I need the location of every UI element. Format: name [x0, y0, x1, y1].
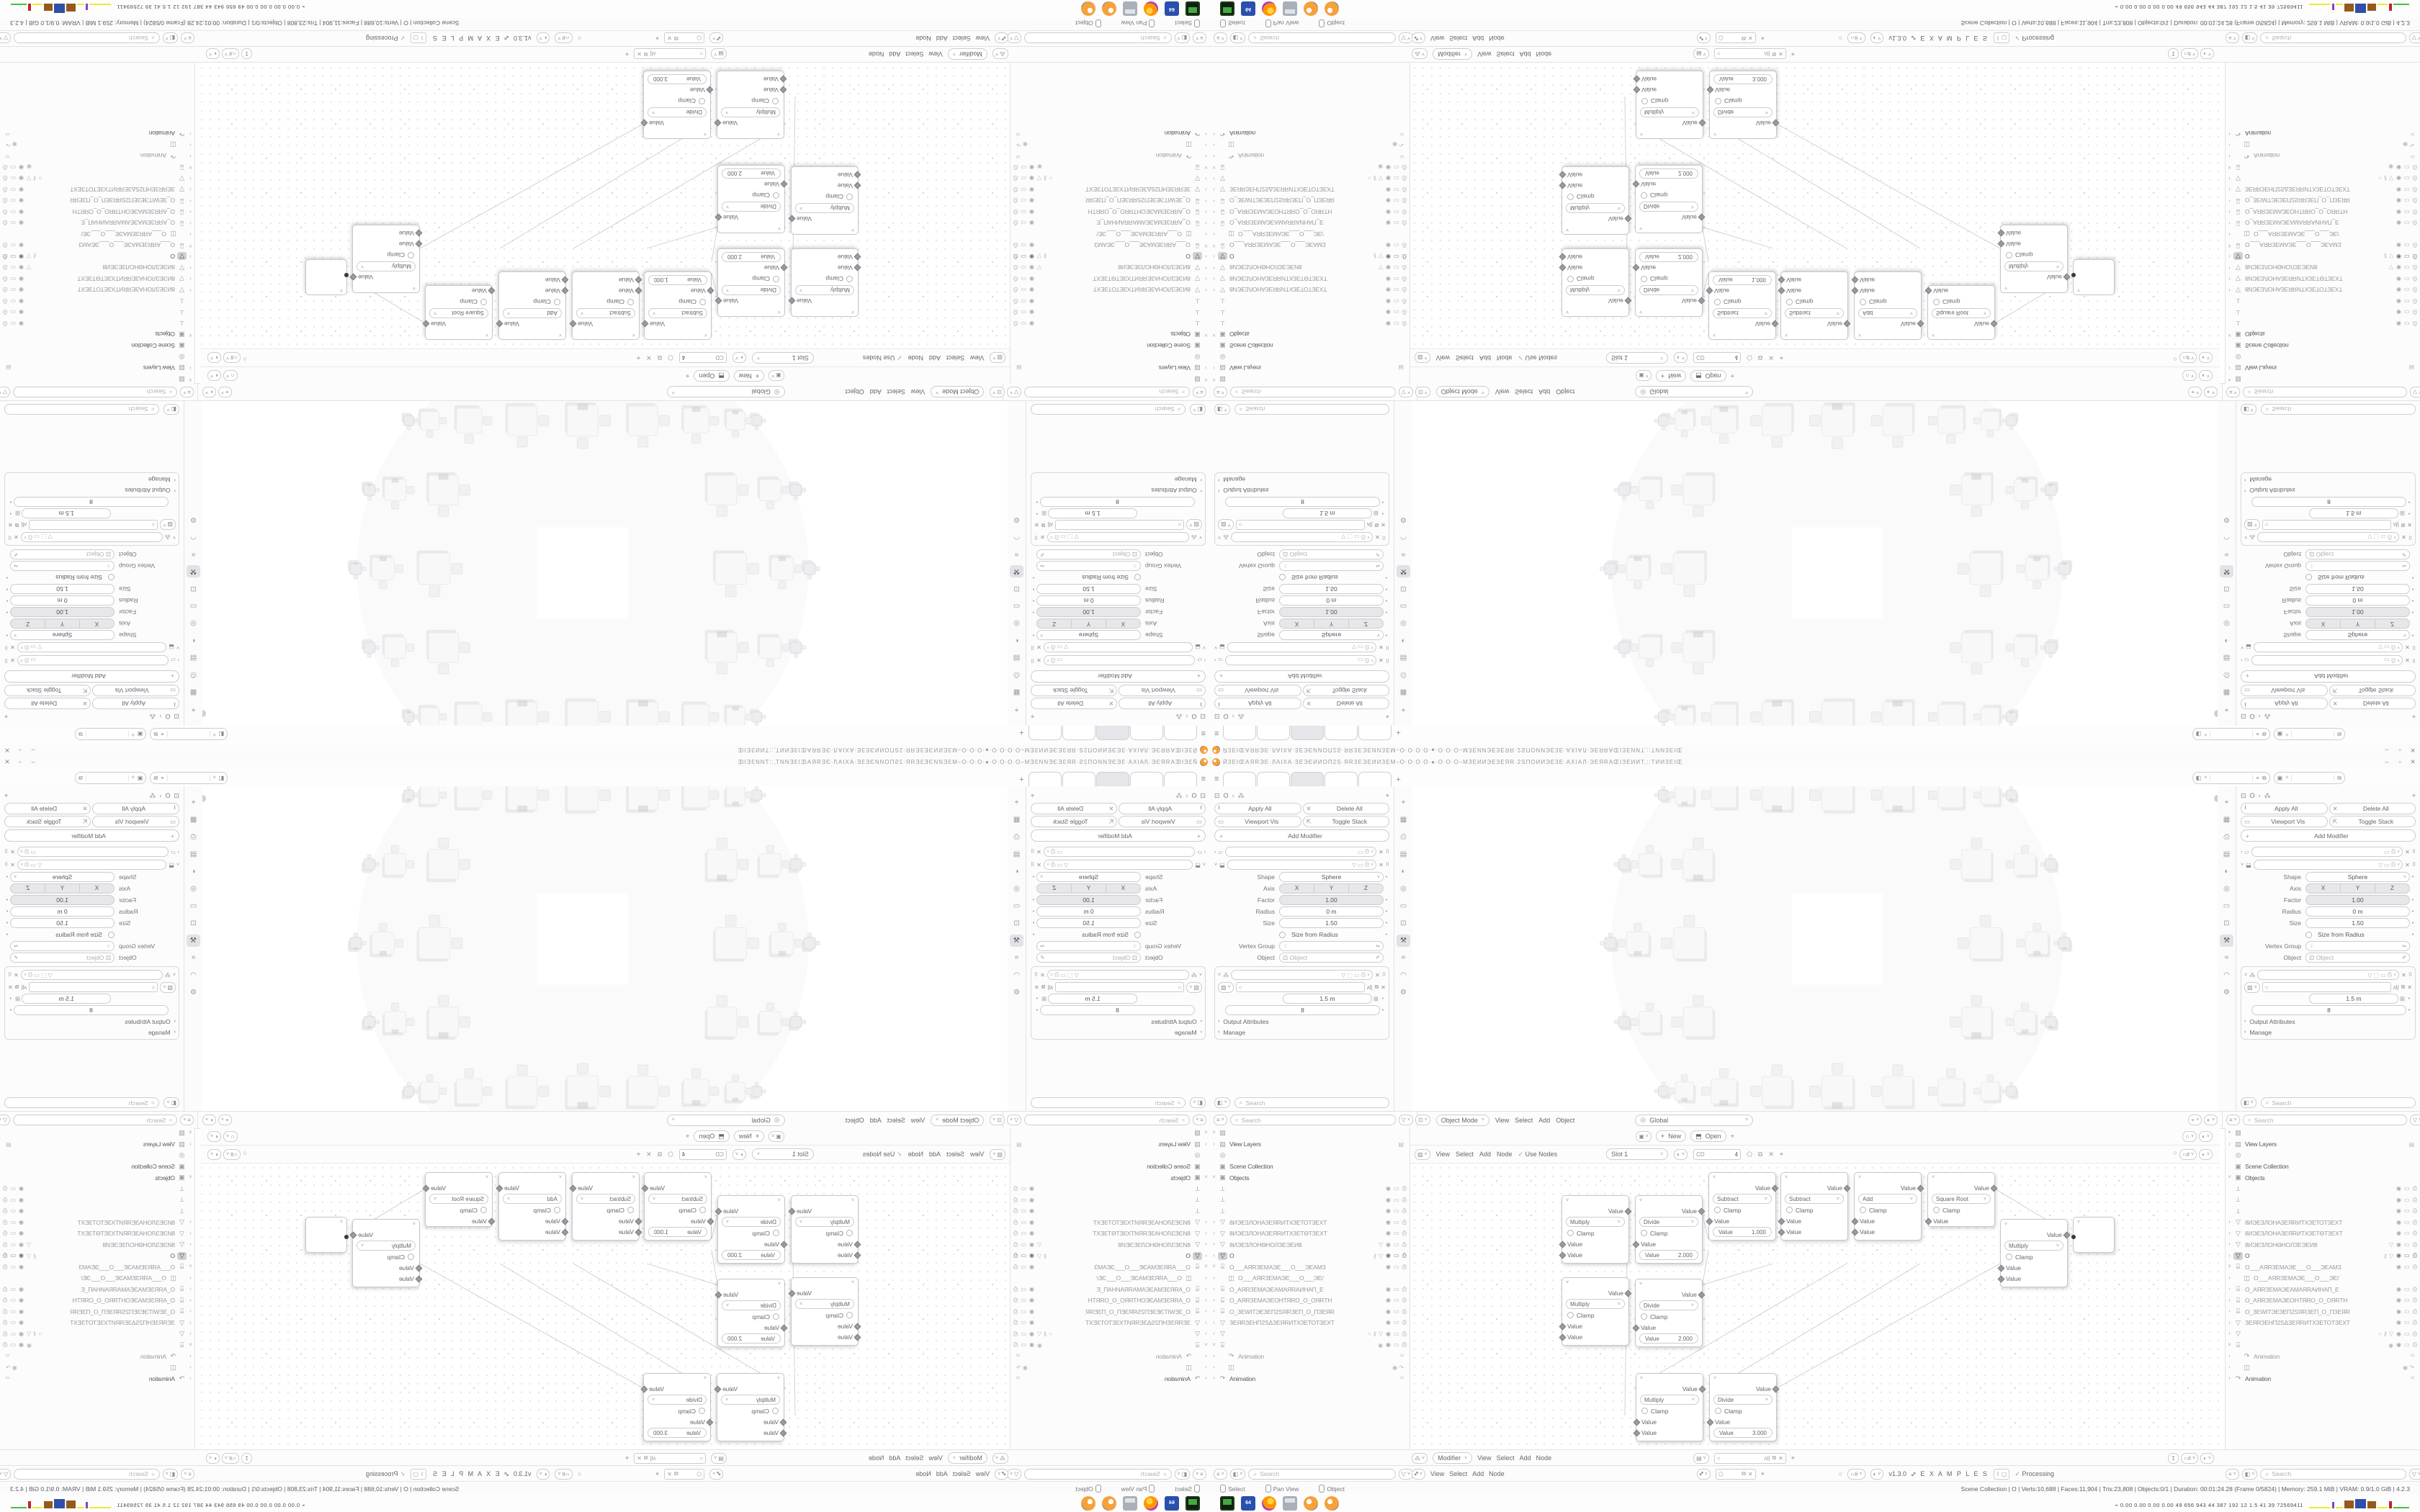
material-browse-dropdown[interactable]: ▤ ˅	[1693, 49, 1709, 60]
workspace-tab[interactable]	[1291, 772, 1324, 786]
maximize-button[interactable]: ▫	[2396, 758, 2404, 766]
hide-viewport-icon[interactable]: ◉	[1029, 219, 1034, 226]
hide-viewport-icon[interactable]: ◉	[19, 219, 24, 226]
hide-viewport-icon[interactable]: ◉	[1386, 1331, 1391, 1338]
disable-render-icon[interactable]: ⎙	[1402, 186, 1407, 193]
disable-render-icon[interactable]: ⎙	[1402, 297, 1407, 305]
outliner-row[interactable]: ˅⌸◉◉▭⎙	[0, 1340, 194, 1351]
properties-tab-icon[interactable]: ⊡	[2220, 582, 2233, 595]
disable-viewport-icon[interactable]: ▭	[2404, 197, 2410, 204]
factor-field[interactable]: 1.00	[1279, 607, 1384, 617]
outliner-row[interactable]: ◎	[2226, 351, 2420, 363]
outliner-row[interactable]: ›⌸O_AЯRЗЕМАЭЕАМАЯRАИНАП_Е◉▭⎙	[2226, 1284, 2420, 1295]
menu-icon[interactable]: ≡	[1201, 775, 1206, 783]
output-attributes-section[interactable]: ›Output Attributes	[8, 1016, 176, 1027]
delete-all-button[interactable]: ✕Delete All	[1031, 698, 1118, 709]
workspace-tab[interactable]	[1164, 726, 1197, 740]
hide-viewport-icon[interactable]: ◉	[19, 241, 24, 248]
radius-field[interactable]: 0 m	[1036, 595, 1141, 606]
shape-dropdown[interactable]: Sphere˅	[2305, 872, 2410, 882]
math-node-divide[interactable]: ˅ValueDivide˅ClampValueValue3.000	[1709, 1373, 1777, 1441]
menu-view[interactable]: View	[1495, 1117, 1509, 1124]
outliner-row[interactable]: ›⌸O_ЗЕWІТЭЕЗЕП2SЯRЗЕП_О_ПЗЕЯR◉▭⎙	[0, 195, 194, 207]
menu-view[interactable]: View	[911, 389, 925, 396]
hide-viewport-icon[interactable]: ◉	[2396, 1252, 2401, 1259]
object-field[interactable]: ⊡ Object✐	[1036, 953, 1141, 963]
outliner-row[interactable]: ›◫◉ ↷	[1210, 1362, 1410, 1374]
clamp-checkbox[interactable]: Clamp	[426, 1205, 492, 1215]
axis-toggle[interactable]: XYZ	[2305, 883, 2410, 894]
slot-dropdown[interactable]: Slot 1˅	[752, 1148, 814, 1160]
outliner-row[interactable]: ›⌸O_AЯRЗЕМАЭЕОНТЯRО_О_ОЯRТН◉▭⎙	[1210, 1295, 1410, 1307]
value-input[interactable]: Value3.000	[1713, 74, 1773, 84]
browse-dropdown[interactable]: ◧ ˅	[1214, 1097, 1230, 1108]
size-field[interactable]: 1.50	[1279, 584, 1384, 594]
outliner-row[interactable]: ›▤View Layers▤	[2226, 1139, 2420, 1151]
clamp-checkbox[interactable]: Clamp	[499, 1205, 565, 1215]
outliner-row[interactable]: ›◫◉ ↷	[1210, 139, 1410, 150]
close-button[interactable]: ✕	[2408, 758, 2417, 766]
menu-select[interactable]: Select	[887, 389, 905, 396]
taskbar-app-terminal[interactable]	[1186, 1496, 1200, 1511]
disable-render-icon[interactable]: ⎙	[3, 1197, 7, 1204]
outliner-row[interactable]: ›▽8ИЭЕЗЛОНАЗЕЯRИТХЗЕТОТЗЕХТ◉▭⎙	[2226, 1217, 2420, 1228]
outliner-row[interactable]: ›▽O⚷ ▽◉▭⎙	[0, 1251, 194, 1262]
size-field[interactable]: 1.50	[1279, 918, 1384, 928]
menu-add[interactable]: Add	[1479, 354, 1491, 361]
snap-dropdown[interactable]: ∩# ˅	[1847, 33, 1865, 44]
disable-viewport-icon[interactable]: ▭	[1021, 1331, 1026, 1338]
outliner-row[interactable]: ⟂◉▭⎙	[1010, 1194, 1210, 1206]
editor-type-dropdown[interactable]: ⊡ ˅	[990, 1115, 1005, 1125]
properties-tab-icon[interactable]: ⌗	[187, 548, 200, 560]
properties-tab-icon[interactable]: ◠	[1010, 531, 1023, 543]
disable-viewport-icon[interactable]: ▭	[1394, 174, 1399, 181]
properties-tab-icon[interactable]: ◠	[187, 969, 200, 981]
display-mode-dropdown[interactable]: ≡ ˅	[181, 33, 194, 44]
outliner-row[interactable]: ›⌸O_AЯRЗЕМАЭЕОНТЯRО_О_ОЯRТН◉▭⎙	[2226, 206, 2420, 217]
properties-tab-icon[interactable]: ⚒	[187, 935, 200, 947]
properties-tab-icon[interactable]: ⚙	[2220, 513, 2233, 526]
filter-dropdown[interactable]: ▽ ˅	[1007, 387, 1021, 397]
properties-tab-icon[interactable]: ▤	[1010, 652, 1023, 664]
menu-icon[interactable]: ≡	[1214, 775, 1219, 783]
properties-tab-icon[interactable]: ▭	[2220, 900, 2233, 912]
geo-size-field[interactable]: 1.5 m	[2309, 508, 2398, 518]
clamp-checkbox[interactable]: Clamp	[1709, 297, 1775, 307]
properties-tab-icon[interactable]: ⊡	[1010, 917, 1023, 930]
properties-tab-icon[interactable]: ◎	[1010, 883, 1023, 895]
mode-toggle[interactable]: ⌇▢	[1994, 33, 2009, 44]
disable-viewport-icon[interactable]: ▭	[2404, 1197, 2410, 1204]
snap-dropdown[interactable]: ∩# ˅	[555, 1469, 572, 1480]
hide-viewport-icon[interactable]: ◉	[2396, 297, 2401, 305]
node-canvas[interactable]: ˅ValueMultiply˅ClampValueValue˅ValueDivi…	[200, 63, 1010, 348]
hide-viewport-icon[interactable]: ◉	[1029, 1341, 1034, 1349]
hide-viewport-icon[interactable]: ◉	[2396, 219, 2401, 226]
menu-node[interactable]: Node	[1497, 1151, 1512, 1158]
menu-node[interactable]: Node	[869, 50, 884, 58]
output-attributes-section[interactable]: ›Output Attributes	[2244, 485, 2412, 496]
outliner-row[interactable]: ›↷Animation⁴²	[1210, 1351, 1410, 1362]
disable-viewport-icon[interactable]: ▭	[1021, 264, 1026, 271]
outliner-row[interactable]: ›↷Animation⁴²	[0, 1351, 194, 1362]
math-node-subtract[interactable]: ˅ValueSubtract˅ClampValueValue1.000	[644, 1172, 712, 1241]
disable-viewport-icon[interactable]: ▭	[10, 1264, 16, 1271]
math-node-multiply[interactable]: ˅ValueMultiply˅ClampValueValue	[1636, 1373, 1703, 1441]
math-node-square-root[interactable]: ˅ValueSquare Root˅ClampValue	[1927, 285, 1995, 340]
menu-select[interactable]: Select	[905, 1454, 923, 1462]
shape-dropdown[interactable]: Sphere˅	[1279, 630, 1384, 640]
outliner-row[interactable]: ›▽○ ⚷ ▽◉▭⎙	[0, 1328, 194, 1340]
menu-select[interactable]: Select	[953, 1470, 971, 1477]
delete-all-button[interactable]: ✕Delete All	[2329, 803, 2416, 814]
hide-viewport-icon[interactable]: ◉	[1029, 163, 1034, 171]
clamp-checkbox[interactable]: Clamp	[792, 192, 858, 202]
disable-render-icon[interactable]: ⎙	[2413, 297, 2417, 305]
filter-dropdown[interactable]: ▽ ˅	[1399, 1469, 1413, 1480]
node-tree-row[interactable]: ▨ ˅○ʌl|⧉✕	[8, 519, 176, 531]
outliner-row[interactable]: ›↷Animation⁴²	[1210, 1373, 1410, 1385]
hide-viewport-icon[interactable]: ◉	[1386, 1341, 1391, 1349]
menu-node[interactable]: Node	[907, 354, 923, 361]
disable-render-icon[interactable]: ⎙	[1013, 1264, 1018, 1271]
snap-dropdown[interactable]: ∩# ˅	[2181, 1453, 2198, 1464]
disable-render-icon[interactable]: ⎙	[1013, 320, 1018, 327]
disable-viewport-icon[interactable]: ▭	[10, 297, 16, 305]
workspace-tab[interactable]	[1028, 772, 1062, 786]
disable-viewport-icon[interactable]: ▭	[1394, 1207, 1399, 1215]
size-from-radius-checkbox[interactable]: Size from Radius	[1279, 574, 1384, 581]
browse-dropdown[interactable]: ◧ ˅	[163, 404, 179, 415]
copy-icon[interactable]: ⧉	[658, 354, 662, 362]
clamp-checkbox[interactable]: Clamp	[1855, 1205, 1921, 1215]
outliner-row[interactable]: ›▽ЗЕЯRЗЕНП2SΔЗЕЯRИТХЗЕТОТЗЕХТ◉▭⎙	[1210, 184, 1410, 195]
taskbar-app-calc[interactable]	[1283, 1496, 1297, 1511]
display-mode-dropdown[interactable]: ≡ ˅	[1214, 1469, 1227, 1480]
outliner-row[interactable]: ›▽ЗЕЯRЗЕНП2SΔЗЕЯRИТХЗЕТОТЗЕХТ◉▭⎙	[1210, 1318, 1410, 1329]
outliner-search-input[interactable]: ⌕Search	[1024, 33, 1171, 44]
viewport-3d[interactable]	[202, 786, 1008, 1111]
operation-dropdown[interactable]: Multiply˅	[2004, 261, 2063, 271]
radius-field[interactable]: 0 m	[1279, 906, 1384, 917]
editor-type-dropdown[interactable]: ▨ ˅	[990, 1149, 1005, 1160]
hide-viewport-icon[interactable]: ◉	[19, 1207, 24, 1215]
id-selector-pill[interactable]: ▣˅⧉	[75, 772, 146, 784]
disable-viewport-icon[interactable]: ▭	[10, 197, 16, 204]
operation-dropdown[interactable]: Multiply˅	[2004, 1241, 2063, 1251]
disable-viewport-icon[interactable]: ▭	[10, 1319, 16, 1326]
properties-tab-icon[interactable]: ◐	[187, 865, 200, 878]
copy-icon[interactable]: ⧉	[1758, 354, 1762, 362]
disable-viewport-icon[interactable]: ▭	[1021, 219, 1026, 226]
filter-dropdown[interactable]: ▽ ˅	[1007, 33, 1021, 44]
properties-tab-icon[interactable]: ◠	[1010, 969, 1023, 981]
math-node-divide[interactable]: ˅ValueDivide˅ClampValueValue2.000	[1635, 248, 1703, 317]
viewport-3d[interactable]	[1412, 786, 2218, 1111]
id-selector-pill[interactable]: ◧˅⌖⧉	[2192, 772, 2270, 784]
operation-dropdown[interactable]: Divide˅	[1639, 1300, 1698, 1310]
outliner-row[interactable]: ›⌸O_ЗЕWІТЭЕЗЕП2SЯRЗЕП_О_ПЗЕЯR◉▭⎙	[1010, 1306, 1210, 1318]
taskbar-app-calc[interactable]	[1283, 1, 1297, 16]
value-input[interactable]: Value3.000	[647, 74, 707, 84]
snap-dropdown[interactable]: ∩# ˅	[1847, 1469, 1865, 1480]
math-node-square-root[interactable]: ˅ValueSquare Root˅ClampValue	[1927, 1172, 1995, 1227]
disable-render-icon[interactable]: ⎙	[2413, 186, 2417, 193]
value-input[interactable]: Value2.000	[1639, 168, 1698, 179]
shape-dropdown[interactable]: Sphere˅	[10, 630, 115, 640]
modifier-row-geonodes[interactable]: ˅⁂▽⬚▭⎙˅✕⠿	[2244, 531, 2412, 544]
add-modifier-button[interactable]: +Add Modifier	[1031, 670, 1206, 683]
maximize-button[interactable]: ▫	[16, 758, 24, 766]
operation-dropdown[interactable]: Subtract˅	[576, 1194, 635, 1204]
workspace-tab[interactable]	[1164, 772, 1197, 786]
disable-viewport-icon[interactable]: ▭	[1021, 186, 1026, 193]
node-tree-selector[interactable]: ○ʌl|⧉✕	[1714, 1453, 1786, 1464]
outliner-row[interactable]: ›▽8ИЭЕЗЛОНАЗЕЯRИТХЗЕТѲТЗЕХТ◉▭⎙	[1210, 1228, 1410, 1240]
disable-render-icon[interactable]: ⎙	[1402, 286, 1407, 293]
outliner-row[interactable]: ›⌸O_ЗЕWІТЭЕЗЕП2SЯRЗЕП_О_ПЗЕЯR◉▭⎙	[2226, 195, 2420, 207]
overlays-dropdown[interactable]: ◐ ˅	[2204, 387, 2218, 397]
outliner-row[interactable]: ›▽8ИЭЕЗЛОНАЗЕЯRИТХЗЕТѲТЗЕХТ◉▭⎙	[1010, 273, 1210, 284]
outliner-row[interactable]: ⟂◉▭⎙	[0, 1184, 194, 1195]
hide-viewport-icon[interactable]: ◉	[2396, 253, 2401, 260]
overlays-dropdown[interactable]: ◐ ˅	[206, 1453, 220, 1464]
add-modifier-button[interactable]: +Add Modifier	[2241, 670, 2416, 683]
disable-viewport-icon[interactable]: ▭	[1394, 1230, 1399, 1237]
menu-select[interactable]: Select	[1449, 1470, 1467, 1477]
operation-dropdown[interactable]: Multiply˅	[1640, 107, 1699, 117]
delete-all-button[interactable]: ✕Delete All	[1031, 803, 1118, 814]
menu-add[interactable]: Add	[889, 1454, 900, 1462]
disable-viewport-icon[interactable]: ▭	[1021, 1341, 1026, 1349]
clamp-checkbox[interactable]: Clamp	[1928, 1205, 1994, 1215]
hide-viewport-icon[interactable]: ◉	[1386, 186, 1391, 193]
add-modifier-button[interactable]: +Add Modifier	[1214, 670, 1389, 683]
manage-section[interactable]: ›Manage	[1034, 474, 1202, 485]
outliner-row[interactable]: ›◫◉ ↷	[0, 139, 194, 150]
node-group-dropdown[interactable]: 🙾 ˅	[1697, 1469, 1711, 1480]
hide-viewport-icon[interactable]: ◉	[2396, 208, 2401, 215]
properties-tab-icon[interactable]: ⚒	[1397, 935, 1410, 947]
display-mode-dropdown[interactable]: ≡ ˅	[180, 387, 194, 397]
disable-render-icon[interactable]: ⎙	[3, 297, 7, 305]
hide-viewport-icon[interactable]: ◉	[2396, 1207, 2401, 1215]
outliner-row[interactable]: ›▽8ИЭЕЗЛОНАЗЕЯRИТХЗЕТѲТЗЕХТ◉▭⎙	[2226, 1228, 2420, 1240]
vertex-group-field[interactable]: ⁘⇋	[1279, 941, 1384, 951]
display-mode-dropdown[interactable]: ≡ ˅	[2226, 1469, 2239, 1480]
outliner-row[interactable]: ◎	[0, 1150, 194, 1161]
hide-viewport-icon[interactable]: ◉	[2396, 308, 2401, 315]
outliner-row[interactable]: ˅▨	[0, 374, 194, 385]
pin-icon[interactable]: ⌖	[1780, 354, 1783, 362]
disable-viewport-icon[interactable]: ▭	[1394, 1264, 1399, 1271]
disable-render-icon[interactable]: ⎙	[1013, 308, 1018, 315]
outliner-row[interactable]: ˅⌸O___AЯRЗЕМАЭЕ___O___ЭЕАМЗ◉▭⎙	[0, 240, 194, 251]
pin-icon[interactable]: ⌖	[1731, 1133, 1734, 1140]
disable-render-icon[interactable]: ⎙	[2413, 219, 2417, 226]
material-preview-dropdown[interactable]: ◐ ˅	[1674, 353, 1688, 364]
modifier-row-collapsed[interactable]: ›▱▭⎙˅✕⠿	[1214, 654, 1389, 667]
search-input[interactable]: ⌕Search	[2261, 404, 2416, 415]
outliner-row[interactable]: ›⌸O_AЯRЗЕМАЭЕОНТЯRО_О_ОЯRТН◉▭⎙	[1210, 206, 1410, 217]
properties-tab-icon[interactable]: ⌖	[1010, 703, 1023, 716]
size-from-radius-checkbox[interactable]: Size from Radius	[2305, 574, 2410, 581]
mode-dropdown[interactable]: Object Mode˅	[931, 1115, 984, 1126]
taskbar-app-terminal[interactable]	[1220, 1, 1234, 16]
menu-object[interactable]: Object	[846, 1117, 864, 1124]
overlays-dropdown[interactable]: ◐ ˅	[537, 1469, 550, 1480]
node-group-selector[interactable]: ⬠⧉✕	[1716, 33, 1756, 44]
outliner-row[interactable]: ›▽ЗЕЯRЗЕНП2SΔЗЕЯRИТХЗЕТОТЗЕХТ◉▭⎙	[1010, 184, 1210, 195]
shape-dropdown[interactable]: Sphere˅	[1036, 872, 1141, 882]
new-tab-button[interactable]: +	[1019, 775, 1023, 784]
disable-render-icon[interactable]: ⎙	[1013, 208, 1018, 215]
node-group-selector[interactable]: ⬠⧉✕	[664, 1469, 704, 1480]
hide-viewport-icon[interactable]: ◉	[1029, 1230, 1034, 1237]
disable-render-icon[interactable]: ⎙	[1013, 186, 1018, 193]
factor-field[interactable]: 1.00	[2305, 607, 2410, 617]
apply-all-button[interactable]: ⭳Apply All	[1214, 803, 1301, 814]
outliner-row[interactable]: ›↷Animation⁴²	[2226, 150, 2420, 162]
modifier-row-cast[interactable]: ˅⬓▽▭⎙˅✕⠿	[1031, 858, 1206, 871]
display-mode-dropdown[interactable]: ≡ ˅	[2226, 387, 2240, 397]
fake-user-icon[interactable]: ⬠	[668, 354, 673, 362]
properties-tab-icon[interactable]: ⌗	[1397, 548, 1410, 560]
apply-all-button[interactable]: ⭳Apply All	[2241, 698, 2328, 709]
outliner-row[interactable]: ›⌸O_AЯRЗЕМАЭЕАМАЯRАИНАП_Е◉▭⎙	[0, 1284, 194, 1295]
search-input[interactable]: ⌕Search	[1031, 1097, 1186, 1108]
hide-viewport-icon[interactable]: ◉	[1029, 1207, 1034, 1215]
menu-select[interactable]: Select	[1515, 1117, 1533, 1124]
mode-toggle[interactable]: ⌇▢	[411, 33, 426, 44]
properties-tab-icon[interactable]: ◎	[187, 617, 200, 629]
geo-size-field[interactable]: 1.5 m	[2309, 994, 2398, 1004]
pin-icon[interactable]: ⌖	[637, 1151, 640, 1158]
modifier-row-geonodes[interactable]: ˅⁂▽⬚▭⎙˅✕⠿	[1218, 968, 1386, 981]
outliner-row[interactable]: ›↷Animation⁴²	[0, 150, 194, 162]
proportional-icon[interactable]: ○	[1839, 1470, 1842, 1477]
pin-icon[interactable]: ⌖	[655, 35, 659, 42]
properties-tab-icon[interactable]: ◐	[1397, 865, 1410, 878]
properties-tab-icon[interactable]: ⎙	[1397, 831, 1410, 843]
disable-viewport-icon[interactable]: ▭	[1021, 308, 1026, 315]
workspace-tab[interactable]	[1223, 772, 1256, 786]
id-selector-pill[interactable]: ◧˅⌖⧉	[150, 772, 228, 784]
math-node-multiply[interactable]: ˅ValueMultiply˅ClampValueValue	[717, 1373, 784, 1441]
properties-tab-icon[interactable]: ▤	[1397, 652, 1410, 664]
geo-count-field[interactable]: 8	[1225, 1005, 1380, 1015]
add-modifier-button[interactable]: +Add Modifier	[4, 829, 179, 842]
menu-add[interactable]: Add	[929, 1151, 941, 1158]
properties-tab-icon[interactable]: ◠	[1397, 531, 1410, 543]
disable-viewport-icon[interactable]: ▭	[1394, 241, 1399, 248]
disable-viewport-icon[interactable]: ▭	[1394, 1308, 1399, 1315]
disable-render-icon[interactable]: ⎙	[1402, 197, 1407, 204]
factor-field[interactable]: 1.00	[2305, 895, 2410, 905]
disable-viewport-icon[interactable]: ▭	[1021, 241, 1026, 248]
disable-viewport-icon[interactable]: ▭	[2404, 1230, 2410, 1237]
outliner-row[interactable]: ⟂◉▭⎙	[1010, 307, 1210, 318]
proportional-icon[interactable]: ○	[243, 1149, 246, 1160]
operation-dropdown[interactable]: Divide˅	[722, 1217, 781, 1227]
clamp-checkbox[interactable]: Clamp	[718, 1311, 784, 1322]
modifier-row-collapsed[interactable]: ›▱▭⎙˅✕⠿	[2241, 845, 2416, 858]
outliner-row[interactable]: ˅▨	[1210, 1128, 1410, 1139]
image-browse-dropdown[interactable]: ▣ ˅	[1636, 1131, 1652, 1142]
properties-tab-icon[interactable]: ⎙	[2220, 669, 2233, 681]
operation-dropdown[interactable]: Add˅	[1858, 308, 1917, 318]
modifier-row-collapsed[interactable]: ›▱▭⎙˅✕⠿	[1214, 845, 1389, 858]
pin-icon[interactable]: ⌖	[1761, 35, 1765, 42]
geo-count-field[interactable]: 8	[14, 1005, 169, 1015]
math-node-square-root[interactable]: ˅ValueSquare Root˅ClampValue	[425, 1172, 493, 1227]
search-input[interactable]: ⌕Search	[4, 404, 159, 415]
image-browse-dropdown[interactable]: ▣ ˅	[768, 371, 784, 382]
overlays-dropdown[interactable]: ◐ ˅	[2204, 1115, 2218, 1125]
back-icon[interactable]: ↥	[2168, 49, 2179, 60]
size-from-radius-checkbox[interactable]: Size from Radius	[10, 931, 115, 938]
properties-tab-icon[interactable]: ⊡	[1397, 917, 1410, 930]
hide-viewport-icon[interactable]: ◉	[19, 1197, 24, 1204]
disable-render-icon[interactable]: ⎙	[1013, 275, 1018, 282]
hide-viewport-icon[interactable]: ◉	[2396, 241, 2401, 248]
hide-viewport-icon[interactable]: ◉	[1386, 219, 1391, 226]
pin-icon[interactable]: ⌖	[686, 1133, 689, 1140]
menu-object[interactable]: Object	[1556, 1117, 1574, 1124]
disable-render-icon[interactable]: ⎙	[3, 241, 7, 248]
outliner-row[interactable]: ›↷Animation⁴²	[1010, 1373, 1210, 1385]
disable-render-icon[interactable]: ⎙	[2413, 208, 2417, 215]
material-preview-dropdown[interactable]: ◐ ˅	[732, 1149, 746, 1160]
snap-dropdown[interactable]: ∩# ˅	[2179, 1149, 2197, 1160]
hide-viewport-icon[interactable]: ◉	[1386, 1319, 1391, 1326]
clamp-checkbox[interactable]: Clamp	[1855, 297, 1921, 307]
disable-render-icon[interactable]: ⎙	[1013, 1219, 1018, 1226]
outliner-row[interactable]: ▣Scene Collection	[1010, 340, 1210, 351]
operation-dropdown[interactable]: Divide˅	[647, 107, 707, 117]
taskbar-app-floppy[interactable]: 64	[1165, 1496, 1179, 1511]
properties-tab-icon[interactable]: ⎙	[187, 831, 200, 843]
clamp-checkbox[interactable]: Clamp	[718, 274, 784, 284]
shape-dropdown[interactable]: Sphere˅	[2305, 630, 2410, 640]
hide-viewport-icon[interactable]: ◉	[19, 1264, 24, 1271]
disable-render-icon[interactable]: ⎙	[1402, 1297, 1407, 1304]
value-input[interactable]: Value2.000	[722, 168, 781, 179]
browse-dropdown[interactable]: ◧ ˅	[2241, 1097, 2257, 1108]
material-browse-dropdown[interactable]: ▤ ˅	[711, 1453, 727, 1464]
hide-viewport-icon[interactable]: ◉	[1029, 174, 1034, 181]
disable-viewport-icon[interactable]: ▭	[10, 1297, 16, 1304]
menu-view[interactable]: View	[1477, 50, 1491, 58]
disable-render-icon[interactable]: ⎙	[1402, 1286, 1407, 1293]
outliner-row[interactable]: ›▽O⚷ ▽◉▭⎙	[1010, 1251, 1210, 1262]
hide-viewport-icon[interactable]: ◉	[19, 320, 24, 327]
hide-viewport-icon[interactable]: ◉	[1386, 1197, 1391, 1204]
disable-viewport-icon[interactable]: ▭	[1394, 320, 1399, 327]
filter-type-dropdown[interactable]: ◧ ˅	[163, 1469, 179, 1480]
material-browse-dropdown[interactable]: ▤ ˅	[711, 49, 727, 60]
disable-render-icon[interactable]: ⎙	[3, 1308, 7, 1315]
outliner-row[interactable]: ⟂◉▭⎙	[0, 295, 194, 307]
clamp-checkbox[interactable]: Clamp	[353, 1251, 419, 1262]
browse-dropdown[interactable]: ◧ ˅	[1214, 404, 1230, 415]
properties-tab-icon[interactable]: ⎙	[1010, 669, 1023, 681]
disable-viewport-icon[interactable]: ▭	[1021, 1185, 1026, 1192]
filter-dropdown[interactable]: ▽ ˅	[1399, 1115, 1413, 1125]
properties-tab-icon[interactable]: ⌖	[1397, 796, 1410, 809]
hide-viewport-icon[interactable]: ◉	[1386, 1252, 1391, 1259]
